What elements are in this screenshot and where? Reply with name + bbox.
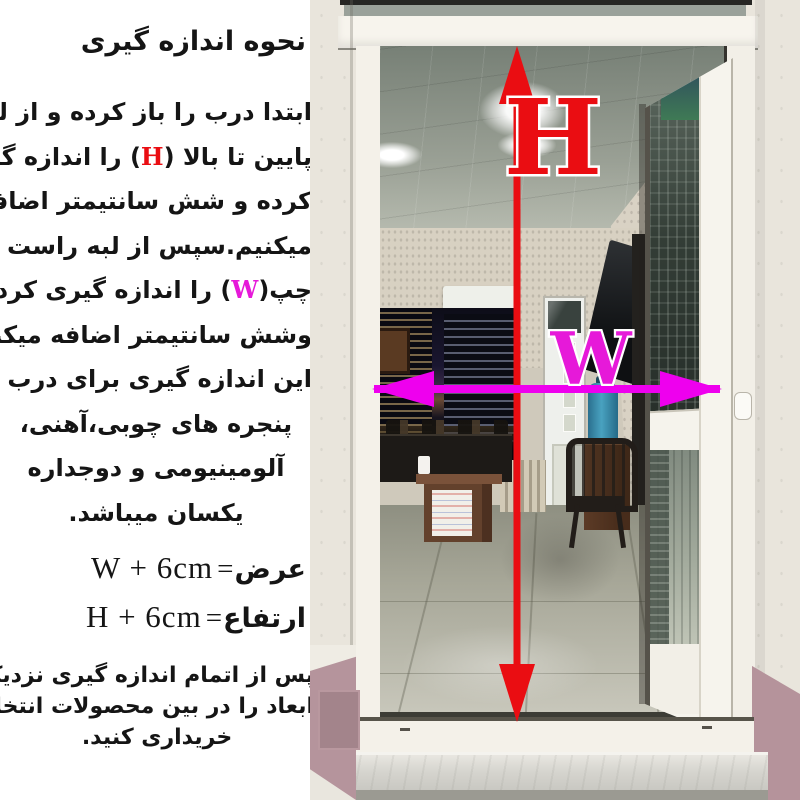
instruction-line: پنجره های چوبی،آهنی،	[0, 402, 312, 447]
width-label: W	[550, 316, 633, 401]
purchase-note-line: خریداری کنید.	[0, 722, 314, 753]
formula-label: عرض	[234, 554, 306, 585]
purchase-note-line: ابعاد را در بین محصولات انتخاب و	[0, 691, 314, 722]
measurement-overlay: H W	[310, 0, 800, 800]
instruction-line: وشش سانتیمتر اضافه میکنیم.	[0, 313, 312, 358]
instruction-line: پایین تا بالا (H) را اندازه گیری	[0, 135, 312, 180]
formula-block: عرض=W + 6cmارتفاع=H + 6cm	[0, 550, 306, 648]
equals-sign: =	[217, 553, 233, 585]
doorway-photo: H W	[310, 0, 800, 800]
instruction-line: یکسان میباشد.	[0, 491, 312, 536]
height-label: H	[504, 76, 602, 199]
measurement-guide: نحوه اندازه گیری ابتدا درب را باز کرده و…	[0, 0, 800, 800]
purchase-note: پس از اتمام اندازه گیری نزدیکترینابعاد ر…	[0, 660, 314, 753]
equals-sign: =	[206, 602, 222, 634]
instruction-line: میکنیم.سپس از لبه راست تا	[0, 224, 312, 269]
height-formula: ارتفاع=H + 6cm	[0, 599, 306, 635]
formula-expression: H + 6cm	[86, 599, 202, 634]
instruction-line: کرده و شش سانتیمتر اضافه	[0, 179, 312, 224]
instruction-line: این اندازه گیری برای درب و	[0, 357, 312, 402]
height-arrowhead-bottom	[499, 664, 535, 722]
width-arrowhead-right	[660, 371, 722, 407]
instruction-line: ابتدا درب را باز کرده و از لبه	[0, 90, 312, 135]
width-arrowhead-left	[372, 371, 434, 407]
instruction-body: ابتدا درب را باز کرده و از لبهپایین تا ب…	[0, 90, 312, 535]
purchase-note-line: پس از اتمام اندازه گیری نزدیکترین	[0, 660, 314, 691]
width-formula: عرض=W + 6cm	[0, 550, 306, 586]
page-title: نحوه اندازه گیری	[0, 26, 306, 57]
height-symbol: H	[141, 142, 164, 171]
instruction-line: چپ(W) را اندازه گیری کرده	[0, 268, 312, 313]
formula-expression: W + 6cm	[91, 550, 213, 585]
instruction-line: آلومینیومی و دوجداره	[0, 446, 312, 491]
instructions-panel: نحوه اندازه گیری ابتدا درب را باز کرده و…	[0, 0, 312, 800]
formula-label: ارتفاع	[223, 603, 306, 634]
width-symbol: W	[231, 275, 258, 304]
